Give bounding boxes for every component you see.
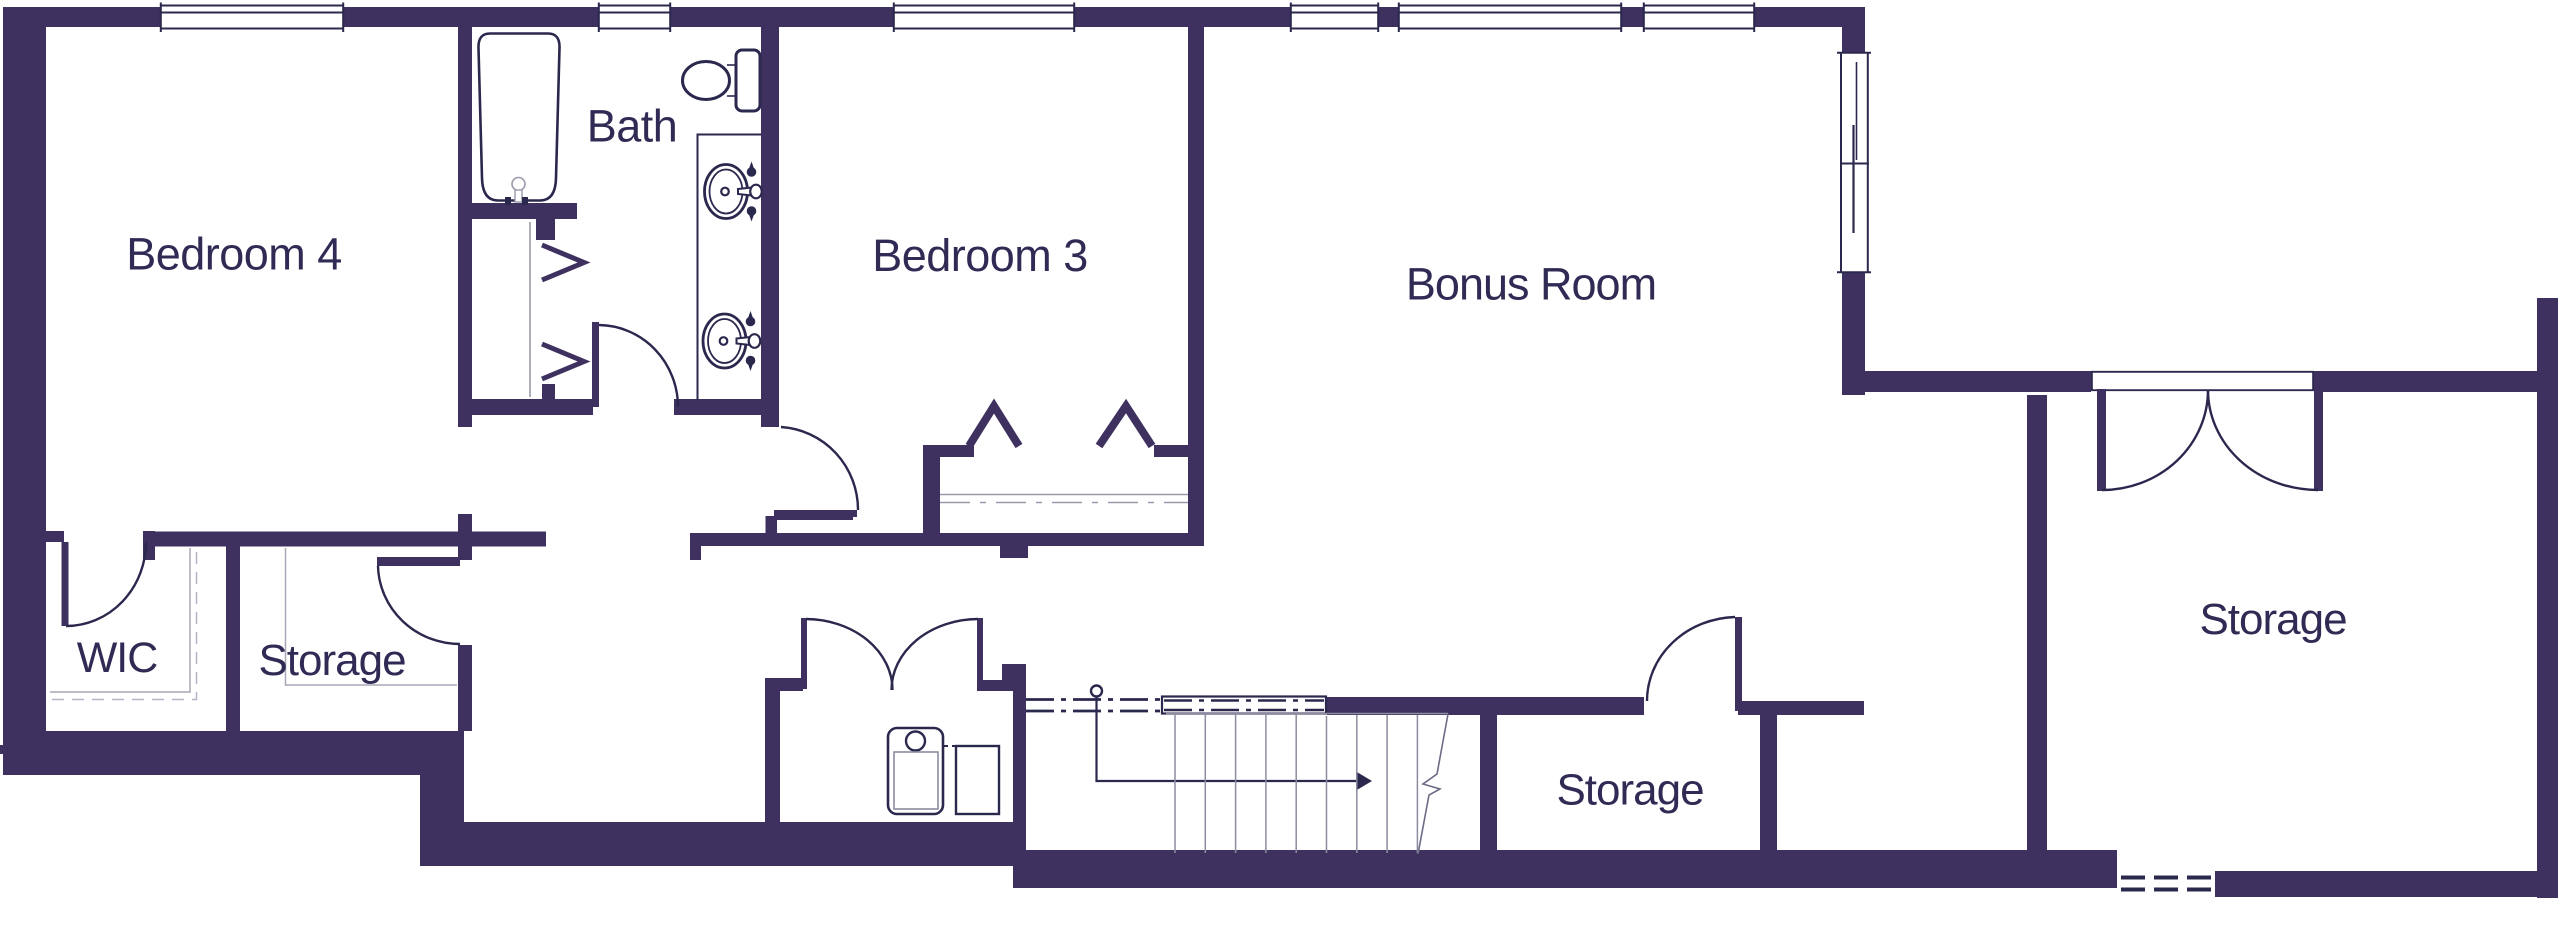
svg-text:Storage: Storage [1556,766,1703,815]
svg-text:WIC: WIC [77,634,158,682]
svg-text:Storage: Storage [2199,595,2346,644]
svg-text:Storage: Storage [258,636,405,685]
svg-text:Bedroom 3: Bedroom 3 [872,230,1088,281]
svg-text:Bedroom 4: Bedroom 4 [126,229,342,280]
svg-text:Bonus Room: Bonus Room [1406,259,1656,310]
svg-text:Bath: Bath [587,101,678,152]
